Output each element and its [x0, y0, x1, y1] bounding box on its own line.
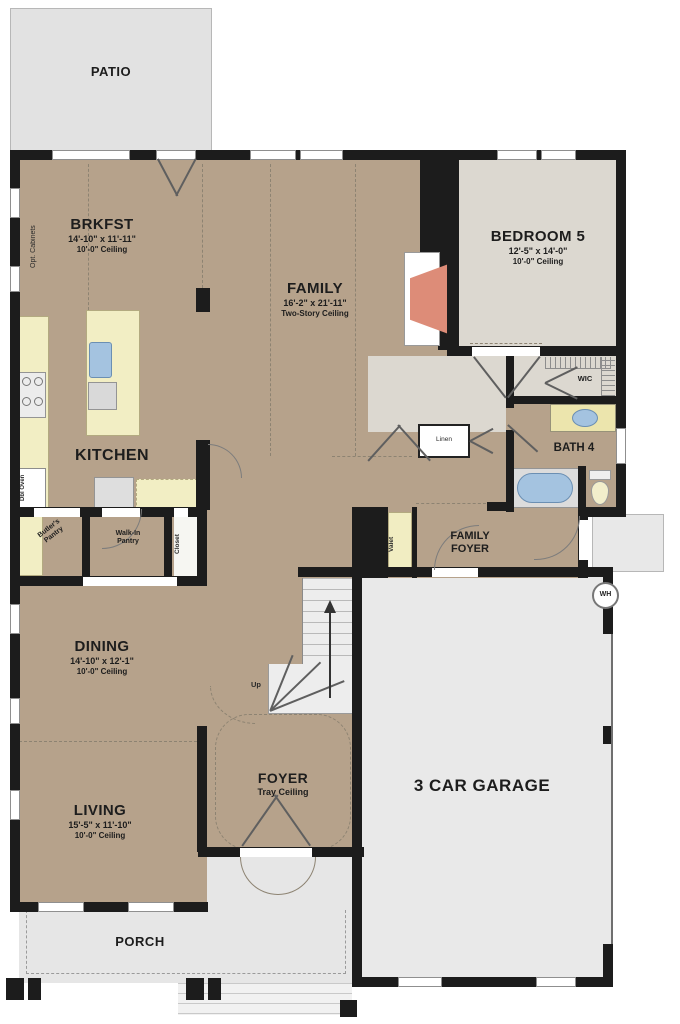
- burner-icon: [34, 397, 43, 406]
- front-door-opening: [240, 848, 312, 857]
- wall: [82, 507, 90, 580]
- wall: [197, 507, 207, 586]
- front-steps: [178, 983, 352, 1015]
- walk-in-pantry-label: Walk-In Pantry: [98, 530, 158, 547]
- porch-post: [186, 978, 204, 1000]
- wall: [506, 430, 514, 512]
- room-label-dining: DINING 14'-10" x 12'-1" 10'-0" Ceiling: [27, 638, 177, 676]
- window: [10, 790, 20, 820]
- floor-hallway: [368, 356, 506, 432]
- label-line: Pantry: [98, 538, 158, 546]
- water-heater-label: WH: [600, 591, 612, 599]
- dashed-opening: [470, 343, 542, 344]
- label-line: FOYER: [410, 543, 530, 556]
- wall: [352, 507, 388, 578]
- porch-post: [340, 1000, 357, 1017]
- window: [128, 902, 174, 912]
- room-name: FAMILY: [240, 280, 390, 298]
- room-dims: 15'-5" x 11'-10": [25, 820, 175, 831]
- room-label-kitchen: KITCHEN: [52, 446, 172, 465]
- stair-arrow-head-icon: [324, 600, 336, 613]
- wall: [447, 158, 459, 356]
- room-label-brkfst: BRKFST 14'-10" x 11'-11" 10'-0" Ceiling: [27, 216, 177, 254]
- room-label-garage: 3 CAR GARAGE: [377, 776, 587, 796]
- up-label: Up: [246, 680, 266, 689]
- window: [497, 150, 537, 160]
- window: [10, 698, 20, 724]
- porch-post: [28, 978, 41, 1000]
- room-ceiling: 10'-0" Ceiling: [27, 667, 177, 677]
- water-heater-icon: WH: [592, 582, 619, 609]
- linen-label: Linen: [420, 436, 468, 444]
- wall: [298, 567, 356, 577]
- kitchen-counter-south: [136, 479, 198, 510]
- burner-icon: [34, 377, 43, 386]
- dashed-opening: [19, 741, 197, 742]
- dbl-oven-label: Dbl Oven: [19, 468, 46, 508]
- staircase: [302, 578, 352, 664]
- room-label-patio: PATIO: [51, 64, 171, 80]
- door-opening: [83, 577, 177, 586]
- dashed-opening: [416, 503, 486, 504]
- refrigerator-icon: [94, 477, 134, 508]
- island-sink-icon: [89, 342, 112, 378]
- room-ceiling: 10'-0" Ceiling: [27, 245, 177, 255]
- wall: [506, 396, 625, 404]
- room-label-bedroom5: BEDROOM 5 12'-5" x 14'-0" 10'-0" Ceiling: [462, 228, 614, 266]
- toilet-tank-icon: [589, 470, 611, 480]
- garage-window: [536, 977, 576, 987]
- closet-label: Closet: [174, 514, 197, 574]
- floor-plan-image: Dbl Oven: [0, 0, 680, 1024]
- room-label-wic: WIC: [563, 374, 607, 383]
- porch-post: [6, 978, 24, 1000]
- room-label-living: LIVING 15'-5" x 11'-10" 10'-0" Ceiling: [25, 802, 175, 840]
- wall: [164, 507, 172, 580]
- room-dims: 14'-10" x 11'-11": [27, 234, 177, 245]
- label-line: Walk-In: [98, 530, 158, 538]
- room-name: BEDROOM 5: [462, 228, 614, 246]
- room-ceiling: 10'-0" Ceiling: [462, 257, 614, 267]
- wall: [487, 502, 514, 511]
- room-label-family-foyer: FAMILY FOYER: [410, 530, 530, 556]
- window: [38, 902, 84, 912]
- room-dims: 16'-2" x 21'-11": [240, 298, 390, 309]
- bath-sink-icon: [572, 409, 598, 427]
- wall-thin: [611, 634, 613, 944]
- room-name: FOYER: [223, 770, 343, 787]
- wall: [196, 288, 210, 312]
- room-ceiling: 10'-0" Ceiling: [25, 831, 175, 841]
- opt-cabinets-label: Opt. Cabinets: [30, 182, 46, 312]
- room-ceiling: Two-Story Ceiling: [240, 309, 390, 319]
- patio-door-opening: [156, 150, 196, 160]
- range-icon: [19, 372, 46, 418]
- dishwasher-icon: [88, 382, 117, 410]
- patio-area: [10, 8, 212, 154]
- dashed-line: [202, 164, 203, 288]
- side-door-opening: [579, 520, 588, 560]
- room-dims: 14'-10" x 12'-1": [27, 656, 177, 667]
- room-label-family: FAMILY 16'-2" x 21'-11" Two-Story Ceilin…: [240, 280, 390, 318]
- burner-icon: [22, 397, 31, 406]
- bedroom-door-opening: [472, 347, 540, 356]
- garage-window: [398, 977, 442, 987]
- room-name: BRKFST: [27, 216, 177, 234]
- room-label-foyer: FOYER Tray Ceiling: [223, 770, 343, 798]
- room-dims: 12'-5" x 14'-0": [462, 246, 614, 257]
- valet-label: Valet: [388, 514, 412, 574]
- wall: [352, 567, 362, 987]
- wall: [578, 466, 586, 512]
- window: [52, 150, 130, 160]
- room-label-porch: PORCH: [80, 934, 200, 950]
- bathtub-basin-icon: [517, 473, 573, 503]
- label-line: FAMILY: [410, 530, 530, 543]
- room-name: DINING: [27, 638, 177, 656]
- window: [10, 188, 20, 218]
- stair-arrow-shaft: [329, 612, 331, 698]
- window: [10, 604, 20, 634]
- window: [250, 150, 296, 160]
- window: [300, 150, 343, 160]
- window: [10, 266, 20, 292]
- porch-post: [208, 978, 221, 1000]
- wall: [197, 726, 207, 852]
- burner-icon: [22, 377, 31, 386]
- room-ceiling: Tray Ceiling: [223, 787, 343, 798]
- room-name: LIVING: [25, 802, 175, 820]
- side-stoop: [592, 514, 664, 572]
- room-label-bath4: BATH 4: [524, 442, 624, 456]
- window: [541, 150, 576, 160]
